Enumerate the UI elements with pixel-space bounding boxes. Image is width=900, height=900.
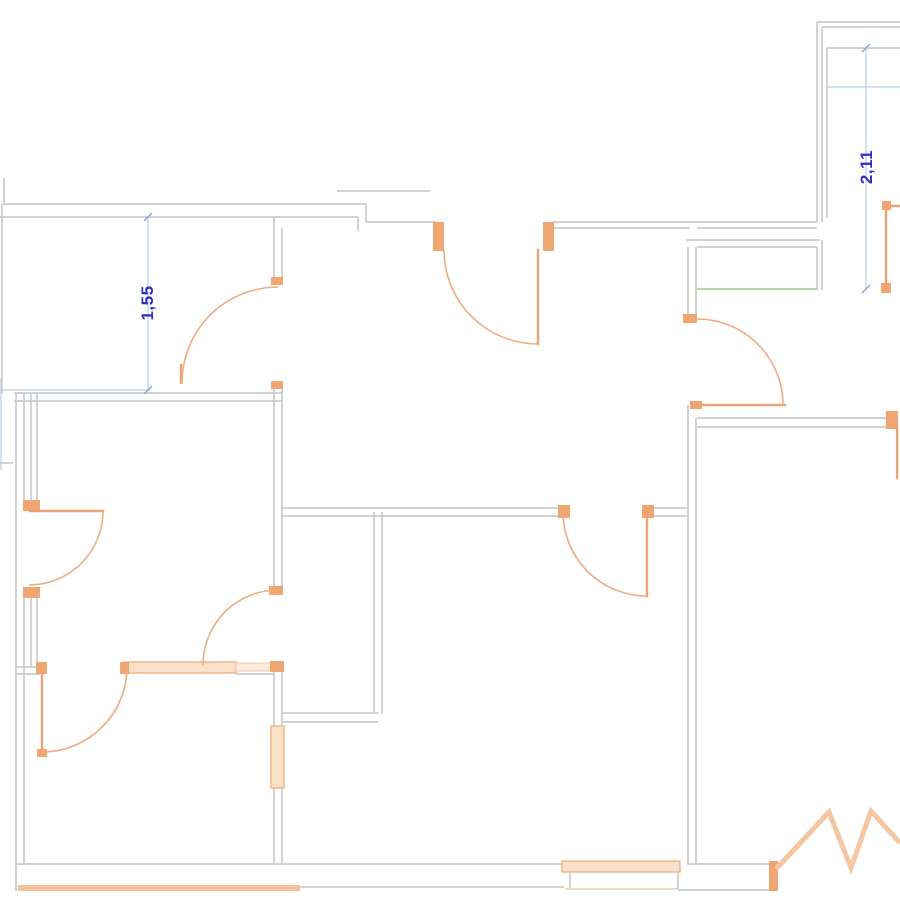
- door-swing-arc: [444, 250, 538, 344]
- door-jamb-marker: [23, 500, 40, 511]
- door-jamb-marker: [271, 277, 283, 285]
- door-jamb-marker: [271, 381, 283, 389]
- door-swing-arc: [29, 511, 103, 585]
- door-jamb-marker: [886, 411, 898, 429]
- door-swing-arc: [203, 590, 278, 665]
- floor-plan-canvas: [0, 0, 900, 900]
- dimension-label-211: 2,11: [857, 150, 877, 184]
- door-swing-arc: [182, 287, 278, 383]
- break-line-zigzag: [776, 811, 900, 869]
- door-swing-arc: [563, 512, 647, 596]
- door-swing-arc: [697, 319, 783, 405]
- dimension-label-155: 1,55: [138, 285, 158, 320]
- door-jamb-marker: [683, 314, 697, 323]
- door-jamb-marker: [433, 222, 444, 251]
- window: [124, 662, 236, 673]
- door-jamb-marker: [36, 662, 47, 674]
- window: [562, 861, 680, 872]
- window: [271, 726, 284, 788]
- door-jamb-marker: [642, 505, 654, 518]
- door-jamb-marker: [270, 661, 284, 672]
- door-jamb-marker: [558, 505, 570, 518]
- door-jamb-marker: [543, 222, 554, 251]
- door-jamb-marker: [23, 587, 40, 598]
- door-jamb-marker: [37, 749, 47, 757]
- door-swing-arc: [42, 667, 127, 752]
- door-jamb-marker: [881, 283, 891, 293]
- door-jamb-marker: [882, 201, 891, 210]
- floor-plan: 1,55 2,11: [0, 0, 900, 900]
- door-jamb-marker: [690, 401, 702, 409]
